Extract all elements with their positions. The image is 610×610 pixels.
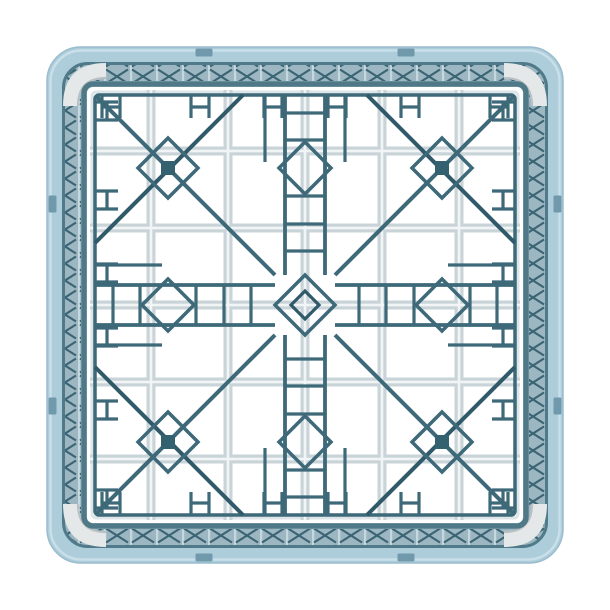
frame-slot — [398, 49, 415, 57]
glass-rack-image — [0, 0, 610, 610]
lattice-hub-square — [161, 435, 175, 449]
frame-slot — [49, 398, 57, 415]
frame-slot — [554, 398, 562, 415]
frame-slot — [554, 196, 562, 213]
product-photo-stage — [0, 0, 610, 610]
frame-slot — [196, 49, 213, 57]
lattice-hub-square — [435, 435, 449, 449]
lattice-hub-square — [161, 161, 175, 175]
frame-slot — [196, 554, 213, 562]
lattice-hub-square — [435, 161, 449, 175]
glass-rack-photo — [0, 0, 610, 610]
frame-slot — [398, 554, 415, 562]
frame-slot — [49, 196, 57, 213]
